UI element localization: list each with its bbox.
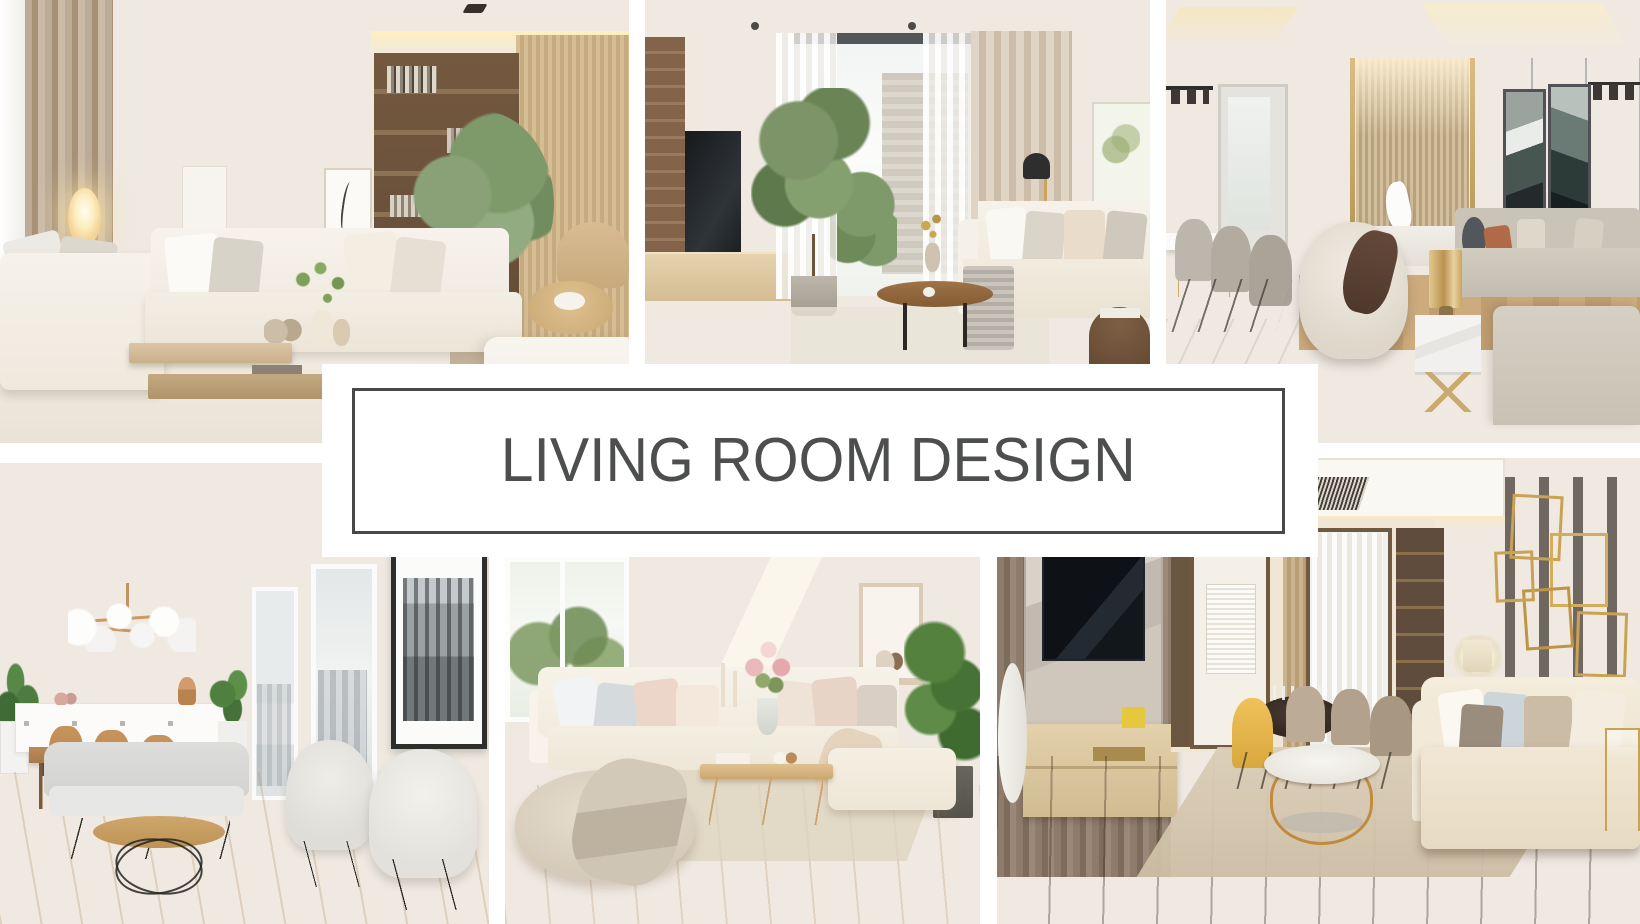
cove-light	[1423, 4, 1630, 51]
table-lamp	[178, 677, 195, 705]
chair-legs	[391, 859, 459, 910]
table-books	[716, 753, 749, 764]
table-leg	[903, 303, 907, 350]
sofa-seat	[1455, 248, 1640, 297]
books-row	[387, 66, 437, 93]
sofa-throw	[963, 266, 1014, 350]
sofa-chaise	[0, 253, 164, 390]
tray-cup	[554, 292, 585, 310]
title-banner: LIVING ROOM DESIGN	[322, 364, 1318, 557]
window-blinds	[1206, 584, 1256, 675]
vase	[757, 698, 778, 735]
table-books	[252, 365, 302, 374]
tv-screen	[1042, 544, 1145, 661]
ottoman	[1493, 306, 1640, 426]
lamp-shade	[1463, 640, 1492, 673]
coffee-table-top	[1264, 745, 1380, 785]
table-legs	[709, 777, 823, 825]
sofa-chaise	[828, 748, 956, 810]
pendant-lamp-shades	[1171, 89, 1209, 105]
title-border-box: LIVING ROOM DESIGN	[352, 388, 1285, 534]
side-table-books	[1100, 308, 1140, 317]
sideboard-handles	[24, 721, 215, 726]
photo-top-middle	[645, 0, 1150, 365]
decor-objects	[54, 691, 78, 705]
gold-side-table	[1605, 728, 1640, 831]
flower-bouquet	[733, 619, 804, 707]
potted-tree	[751, 88, 887, 263]
cove-light	[1166, 7, 1298, 47]
photo-bottom-middle	[505, 557, 980, 924]
coffee-table-top	[129, 343, 293, 363]
rattan-chair	[557, 222, 629, 288]
vase	[333, 319, 349, 346]
dining-chair	[1175, 219, 1213, 281]
door-glass	[1228, 97, 1271, 230]
coffee-table-base	[148, 374, 330, 398]
chair-legs	[1172, 279, 1294, 332]
vase	[925, 243, 940, 272]
candle	[733, 671, 737, 708]
ceiling-spotlight	[908, 22, 916, 30]
vase	[311, 310, 333, 345]
yellow-decor	[1122, 707, 1145, 728]
tv-screen	[685, 131, 741, 251]
dining-chair	[1331, 689, 1370, 745]
city-skyline	[257, 684, 291, 785]
ceiling-spotlight	[751, 22, 759, 30]
art-botanical	[1100, 113, 1140, 186]
ceiling-spotlight	[463, 4, 488, 13]
candle	[721, 663, 725, 707]
tree-trunk	[812, 234, 816, 281]
chandelier-globes	[68, 597, 195, 652]
floor-lamp-dome	[1023, 153, 1050, 179]
artwork-city-photo	[403, 578, 474, 721]
pendant-lamp-shades	[1593, 84, 1636, 100]
sofa-pillow	[1064, 210, 1104, 265]
gold-frame	[1494, 551, 1534, 604]
dining-chair	[1370, 696, 1412, 757]
slat-feature-wall	[1356, 58, 1470, 253]
dining-chair	[1286, 686, 1325, 742]
gold-table-lamp	[1429, 250, 1462, 308]
marble-side-table	[1415, 315, 1481, 376]
loveseat-seat	[49, 786, 245, 816]
page-title: LIVING ROOM DESIGN	[501, 430, 1136, 492]
table-leg	[963, 303, 967, 347]
coffee-table-top	[877, 281, 993, 307]
armchair	[286, 740, 374, 851]
decor-cluster	[264, 317, 302, 346]
gold-frame	[1575, 611, 1629, 678]
collage-canvas: LIVING ROOM DESIGN	[0, 0, 1640, 924]
table-decor	[771, 752, 800, 765]
chair-legs	[303, 841, 362, 887]
gold-x-legs	[1422, 372, 1474, 412]
